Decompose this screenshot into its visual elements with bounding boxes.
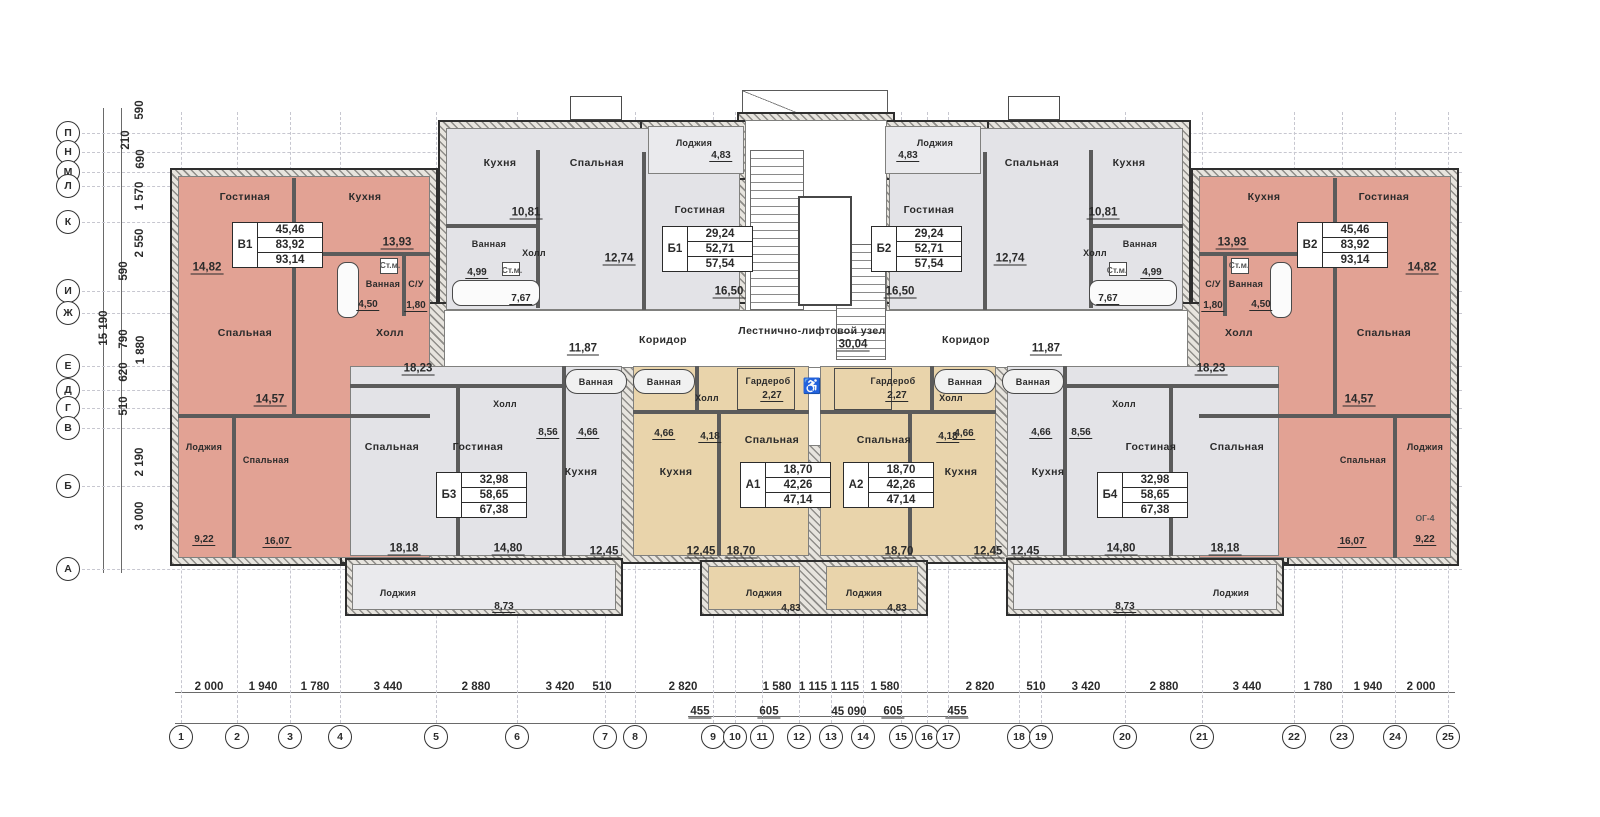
apartment-area-value: 58,65: [1123, 487, 1187, 502]
room-area-value: 4,66: [1029, 427, 1052, 439]
axis-bubble-row: Б: [56, 474, 80, 498]
room-name-label: Ванная: [366, 279, 400, 289]
dimension-value: 510: [118, 396, 130, 415]
room-area-value: 16,50: [713, 286, 746, 299]
room-name-label: Спальная: [365, 441, 419, 453]
dimension-value: 210: [120, 130, 132, 149]
stair-core-area: 30,04: [837, 339, 870, 352]
apartment-area-value: 93,14: [1323, 252, 1387, 267]
floor-plan-sheet: Лестнично-лифтовой узел 30,04 ♿ ВаннаяВа…: [0, 0, 1600, 817]
room-area-value: 10,81: [510, 207, 543, 220]
room-name-label: С/У: [408, 279, 424, 289]
partition-wall: [1199, 414, 1451, 418]
axis-bubble-row: В: [56, 416, 80, 440]
room-area-value: 4,66: [952, 428, 975, 440]
room-area-value: 14,82: [1406, 262, 1439, 275]
dimension-value: 690: [135, 149, 147, 168]
room-name-label: Спальная: [857, 434, 911, 446]
room-name-label: Спальная: [745, 434, 799, 446]
room-area-value: 9,22: [192, 534, 215, 546]
room-name-label: Коридор: [942, 334, 990, 346]
room-name-label: Ст.м.: [380, 260, 401, 270]
dimension-value: 1 880: [135, 336, 147, 365]
room-name-label: Холл: [522, 248, 546, 258]
room-area-value: 11,87: [1030, 343, 1062, 356]
apartment-area-value: 57,54: [897, 256, 961, 271]
room-name-label: Лоджия: [676, 138, 712, 148]
dimension-value: 1 780: [301, 681, 330, 693]
apartment-area-value: 47,14: [766, 492, 830, 507]
room-area-value: 10,81: [1087, 207, 1120, 220]
room-area-value: 7,67: [1096, 293, 1119, 305]
stair-flight: [750, 150, 804, 310]
room-name-label: Гостиная: [1359, 191, 1410, 203]
room-name-label: Холл: [695, 393, 719, 403]
room-area-value: 12,45: [588, 546, 621, 559]
room-area-value: 13,93: [1216, 237, 1249, 250]
stair-core-label: Лестнично-лифтовой узел: [738, 325, 885, 337]
apartment-area-value: 29,24: [897, 227, 961, 241]
apartment-info-box: Б229,2452,7157,54: [871, 226, 962, 272]
room-name-label: Ванная: [1229, 279, 1263, 289]
room-name-label: Лоджия: [186, 442, 222, 452]
room-name-label: Ванная: [1123, 239, 1157, 249]
room-area-value: 8,73: [1113, 601, 1136, 613]
room-name-label: Кухня: [349, 191, 382, 203]
dimension-value: 3 420: [1072, 681, 1101, 693]
apartment-areas: 18,7042,2647,14: [869, 463, 933, 507]
dimension-value: 510: [1026, 681, 1045, 693]
dimension-line: [688, 716, 968, 717]
axis-bubble-column: 3: [278, 725, 302, 749]
apartment-info-box: Б332,9858,6567,38: [436, 472, 527, 518]
room-area: [1007, 366, 1279, 556]
axis-bubble-column: 8: [623, 725, 647, 749]
axis-bubble-column: 22: [1282, 725, 1306, 749]
dimension-value: 3 440: [1233, 681, 1262, 693]
room-name-label: Холл: [1083, 248, 1107, 258]
room-name-label: Лоджия: [846, 588, 882, 598]
room-name-label: Гостиная: [904, 204, 955, 216]
apartment-area-value: 32,98: [462, 473, 526, 487]
axis-bubble-column: 10: [723, 725, 747, 749]
apartment-area-value: 32,98: [1123, 473, 1187, 487]
partition-wall: [292, 178, 296, 414]
axis-bubble-column: 18: [1007, 725, 1031, 749]
room-name-label: Лоджия: [1213, 588, 1249, 598]
room-name-label: Спальная: [218, 327, 272, 339]
dimension-value: 590: [134, 100, 146, 119]
apartment-info-box: В145,4683,9293,14: [232, 222, 323, 268]
apartment-code: Б4: [1098, 473, 1123, 517]
apartment-area-value: 67,38: [1123, 502, 1187, 517]
apartment-areas: 32,9858,6567,38: [1123, 473, 1187, 517]
axis-bubble-column: 2: [225, 725, 249, 749]
room-name-label: Лоджия: [746, 588, 782, 598]
room-area-value: 2,27: [760, 390, 783, 402]
apartment-code: В2: [1298, 223, 1323, 267]
dimension-value: 1 940: [1354, 681, 1383, 693]
room-name-label: Кухня: [660, 466, 693, 478]
apartment-code: Б2: [872, 227, 897, 271]
apartment-area-value: 83,92: [1323, 237, 1387, 252]
bathtub-label: Ванная: [934, 369, 996, 394]
room-area-value: 4,99: [465, 267, 488, 279]
axis-bubble-row: Л: [56, 174, 80, 198]
fixture-box: [834, 368, 892, 410]
dimension-value: 590: [118, 261, 130, 280]
axis-bubble-column: 25: [1436, 725, 1460, 749]
room-name-label: Гардероб: [746, 376, 791, 386]
room-name-label: Лоджия: [380, 588, 416, 598]
partition-wall: [232, 418, 236, 558]
room-area-value: 12,45: [685, 546, 718, 559]
room-area-value: 14,57: [1343, 394, 1376, 407]
room-area-value: 4,50: [356, 299, 379, 311]
axis-bubble-row: Ж: [56, 301, 80, 325]
dimension-value: 605: [881, 706, 904, 719]
room-name-label: Гостиная: [675, 204, 726, 216]
dimension-value: 1 780: [1304, 681, 1333, 693]
axis-bubble-column: 23: [1330, 725, 1354, 749]
dimension-value: 620: [118, 362, 130, 381]
room-area-value: 12,45: [1009, 546, 1042, 559]
room-area-value: 13,93: [381, 237, 414, 250]
apartment-areas: 29,2452,7157,54: [688, 227, 752, 271]
apartment-area-value: 42,26: [869, 477, 933, 492]
room-name-label: Кухня: [1113, 157, 1146, 169]
room-area-value: 4,83: [779, 603, 802, 615]
room-name-label: Кухня: [565, 466, 598, 478]
room-name-label: Спальная: [243, 455, 289, 465]
partition-wall: [633, 410, 809, 414]
axis-bubble-column: 24: [1383, 725, 1407, 749]
dimension-value: 605: [757, 706, 780, 719]
bathtub-icon: [1270, 262, 1292, 318]
axis-bubble-column: 11: [750, 725, 774, 749]
room-area-value: 4,66: [576, 427, 599, 439]
apartment-area-value: 83,92: [258, 237, 322, 252]
partition-wall: [562, 366, 566, 556]
room-name-label: Спальная: [570, 157, 624, 169]
dimension-value: 2 000: [1407, 681, 1436, 693]
room-area-value: 18,70: [883, 546, 916, 559]
axis-bubble-row: К: [56, 210, 80, 234]
room-area: [444, 310, 1188, 368]
bathtub-label: Ванная: [565, 369, 627, 394]
room-name-label: Ст.м.: [1229, 260, 1250, 270]
partition-wall: [350, 384, 566, 388]
room-area-value: 14,80: [492, 543, 525, 556]
room-area-value: 18,70: [725, 546, 758, 559]
room-area: [352, 564, 616, 610]
room-name-label: Холл: [1225, 327, 1253, 339]
apartment-areas: 18,7042,2647,14: [766, 463, 830, 507]
fixture-box: [737, 368, 795, 410]
room-name-label: Кухня: [945, 466, 978, 478]
room-name-label: Ст.м.: [1107, 265, 1128, 275]
room-area-value: 9,22: [1413, 534, 1436, 546]
room-area-value: 8,73: [492, 601, 515, 613]
room-area-value: 8,56: [536, 427, 559, 439]
room-area-value: 12,45: [972, 546, 1005, 559]
apartment-areas: 45,4683,9293,14: [1323, 223, 1387, 267]
room-area-value: 14,57: [254, 394, 287, 407]
dimension-value: 2 550: [134, 229, 146, 258]
dimension-value: 1 115: [831, 681, 859, 693]
room-name-label: Лоджия: [917, 138, 953, 148]
partition-wall: [930, 366, 934, 412]
axis-bubble-column: 21: [1190, 725, 1214, 749]
room-name-label: Холл: [376, 327, 404, 339]
apartment-code: А1: [741, 463, 766, 507]
room-area-value: 18,18: [388, 543, 421, 556]
room-area-value: 18,23: [402, 363, 435, 376]
apartment-info-box: А118,7042,2647,14: [740, 462, 831, 508]
dimension-value: 3 000: [134, 502, 146, 531]
apartment-code: Б1: [663, 227, 688, 271]
apartment-area-value: 47,14: [869, 492, 933, 507]
apartment-info-box: Б129,2452,7157,54: [662, 226, 753, 272]
dimension-value: 455: [688, 706, 711, 719]
room-area-value: 18,18: [1209, 543, 1242, 556]
dimension-value: 3 440: [374, 681, 403, 693]
axis-bubble-row: Е: [56, 354, 80, 378]
apartment-area-value: 57,54: [688, 256, 752, 271]
partition-wall: [178, 414, 430, 418]
apartment-areas: 32,9858,6567,38: [462, 473, 526, 517]
room-area-value: 12,74: [603, 253, 636, 266]
dimension-value: 2 880: [1150, 681, 1179, 693]
dimension-value: 15 190: [98, 310, 110, 345]
apartment-code: Б3: [437, 473, 462, 517]
wheelchair-icon: ♿: [803, 377, 822, 395]
apartment-area-value: 18,70: [869, 463, 933, 477]
room-area-value: 4,66: [652, 428, 675, 440]
fixture-box: [570, 96, 622, 120]
dimension-value: 1 115: [799, 681, 827, 693]
axis-bubble-column: 13: [819, 725, 843, 749]
axis-bubble-column: 20: [1113, 725, 1137, 749]
axis-bubble-column: 6: [505, 725, 529, 749]
axis-bubble-column: 4: [328, 725, 352, 749]
partition-wall: [456, 386, 460, 556]
partition-wall: [642, 152, 646, 310]
dimension-value: 2 190: [134, 448, 146, 477]
room-area-value: 4,18: [698, 431, 721, 443]
room-name-label: ОГ-4: [1416, 513, 1435, 523]
room-name-label: Спальная: [1210, 441, 1264, 453]
room-area-value: 1,80: [1201, 300, 1224, 312]
partition-wall: [1091, 224, 1183, 228]
room-name-label: Спальная: [1340, 455, 1386, 465]
room-name-label: Кухня: [1032, 466, 1065, 478]
room-name-label: Гардероб: [871, 376, 916, 386]
partition-wall: [1169, 386, 1173, 556]
dimension-value: 1 570: [134, 182, 146, 211]
partition-wall: [983, 152, 987, 310]
room-name-label: Холл: [939, 393, 963, 403]
bathtub-label: Ванная: [1002, 369, 1064, 394]
room-name-label: Гостиная: [220, 191, 271, 203]
dimension-value: 2 820: [966, 681, 995, 693]
dimension-value: 1 580: [871, 681, 900, 693]
room-area-value: 14,80: [1105, 543, 1138, 556]
axis-bubble-column: 19: [1029, 725, 1053, 749]
room-name-label: Гостиная: [1126, 441, 1177, 453]
axis-bubble-column: 12: [787, 725, 811, 749]
apartment-area-value: 52,71: [897, 241, 961, 256]
dimension-value: 790: [118, 329, 130, 348]
dimension-value: 2 880: [462, 681, 491, 693]
apartment-area-value: 67,38: [462, 502, 526, 517]
room-name-label: Спальная: [1005, 157, 1059, 169]
apartment-info-box: А218,7042,2647,14: [843, 462, 934, 508]
room-area: [1013, 564, 1277, 610]
fixture-box: [1008, 96, 1060, 120]
room-area: [350, 366, 622, 556]
room-name-label: Кухня: [484, 157, 517, 169]
axis-bubble-column: 15: [889, 725, 913, 749]
apartment-areas: 45,4683,9293,14: [258, 223, 322, 267]
axis-bubble-column: 14: [851, 725, 875, 749]
apartment-areas: 29,2452,7157,54: [897, 227, 961, 271]
apartment-area-value: 42,26: [766, 477, 830, 492]
room-area-value: 2,27: [885, 390, 908, 402]
apartment-area-value: 93,14: [258, 252, 322, 267]
axis-bubble-column: 5: [424, 725, 448, 749]
dimension-value: 1 580: [763, 681, 792, 693]
apartment-code: В1: [233, 223, 258, 267]
dimension-value: 2 820: [669, 681, 698, 693]
axis-bubble-column: 17: [936, 725, 960, 749]
room-name-label: Гостиная: [453, 441, 504, 453]
room-area-value: 16,50: [884, 286, 917, 299]
apartment-area-value: 18,70: [766, 463, 830, 477]
room-area-value: 4,50: [1249, 299, 1272, 311]
room-name-label: Ванная: [472, 239, 506, 249]
dimension-value: 45 090: [831, 706, 866, 718]
apartment-code: А2: [844, 463, 869, 507]
axis-bubble-column: 9: [701, 725, 725, 749]
axis-bubble-row: А: [56, 557, 80, 581]
partition-wall: [1393, 418, 1397, 558]
dimension-value: 1 940: [249, 681, 278, 693]
room-name-label: Кухня: [1248, 191, 1281, 203]
room-area-value: 14,82: [191, 262, 224, 275]
apartment-area-value: 45,46: [1323, 223, 1387, 237]
room-name-label: Спальная: [1357, 327, 1411, 339]
room-name-label: Ст.м.: [502, 265, 523, 275]
apartment-info-box: В245,4683,9293,14: [1297, 222, 1388, 268]
dimension-value: 2 000: [195, 681, 224, 693]
axis-bubble-column: 1: [169, 725, 193, 749]
partition-wall: [695, 366, 699, 412]
apartment-area-value: 58,65: [462, 487, 526, 502]
dimension-value: 455: [945, 706, 968, 719]
room-name-label: Лоджия: [1407, 442, 1443, 452]
room-area-value: 16,07: [1337, 536, 1366, 548]
room-area-value: 11,87: [567, 343, 599, 356]
room-name-label: Коридор: [639, 334, 687, 346]
bathtub-label: Ванная: [633, 369, 695, 394]
partition-wall: [1063, 384, 1279, 388]
apartment-area-value: 29,24: [688, 227, 752, 241]
room-name-label: Холл: [1112, 399, 1136, 409]
room-area-value: 1,80: [404, 300, 427, 312]
axis-bubble-column: 7: [593, 725, 617, 749]
elevator-shaft: [798, 196, 852, 306]
room-area-value: 16,07: [262, 536, 291, 548]
room-area-value: 4,99: [1140, 267, 1163, 279]
axis-bubble-row: И: [56, 279, 80, 303]
room-name-label: Холл: [493, 399, 517, 409]
partition-wall: [1333, 178, 1337, 414]
apartment-area-value: 52,71: [688, 241, 752, 256]
room-area-value: 4,83: [709, 150, 732, 162]
dimension-value: 3 420: [546, 681, 575, 693]
room-area-value: 4,83: [885, 603, 908, 615]
room-area-value: 12,74: [994, 253, 1027, 266]
partition-wall: [446, 224, 538, 228]
room-area-value: 7,67: [509, 293, 532, 305]
room-area-value: 8,56: [1069, 427, 1092, 439]
partition-wall: [1063, 366, 1067, 556]
room-area-value: 4,83: [896, 150, 919, 162]
room-name-label: С/У: [1205, 279, 1221, 289]
apartment-info-box: Б432,9858,6567,38: [1097, 472, 1188, 518]
apartment-area-value: 45,46: [258, 223, 322, 237]
dimension-value: 510: [592, 681, 611, 693]
room-area-value: 18,23: [1195, 363, 1228, 376]
dimension-line: [175, 723, 1455, 724]
